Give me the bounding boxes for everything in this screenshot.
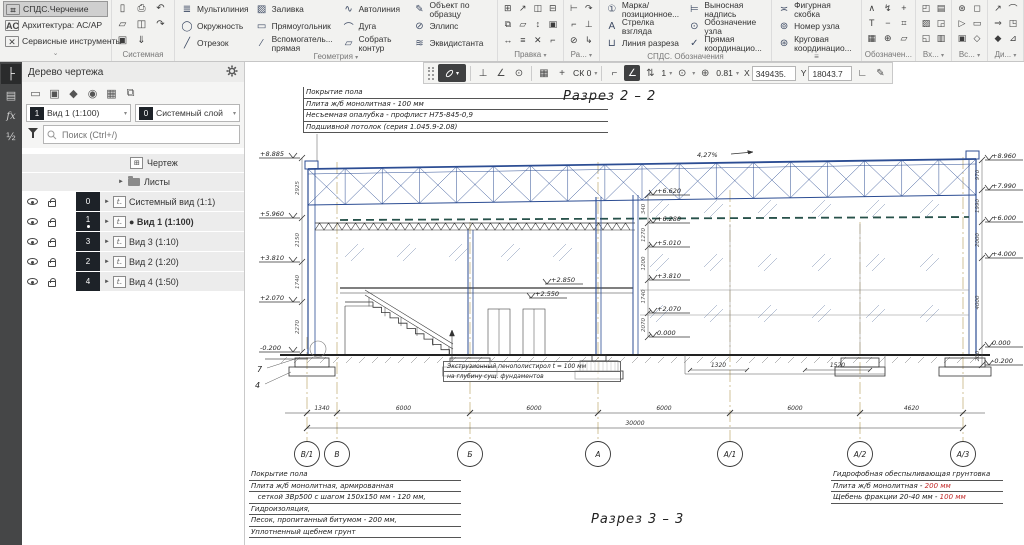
- svg-text:0.000: 0.000: [992, 339, 1011, 347]
- workspace-expand-chevron[interactable]: ⌄: [3, 49, 108, 59]
- chevron-down-icon[interactable]: ▾: [589, 53, 592, 59]
- curly-bracket-icon: ≍: [777, 4, 791, 15]
- tool-label: Прямоугольник: [272, 22, 331, 31]
- properties-rail-icon[interactable]: ▤: [1, 85, 21, 105]
- spec-line: Подшивной потолок (серия 1.045.9-2.08): [304, 122, 608, 134]
- foundation-spec-callout: Гидрофобная обеспыливающая грунтовкаПлит…: [831, 469, 1003, 504]
- segment-tool[interactable]: ╱Отрезок: [178, 35, 253, 52]
- dimension-icons: ⊢⌐⊘↷⊥↳: [567, 1, 596, 49]
- workspace-spds-drafting[interactable]: ⌗ СПДС.Черчение: [3, 1, 108, 17]
- direct-coordination-icon: ✓: [687, 38, 701, 49]
- collect-contour-icon: ▱: [342, 38, 356, 49]
- svg-text:+5.010: +5.010: [657, 239, 681, 247]
- svg-text:1320: 1320: [711, 362, 726, 369]
- ribbon-icon[interactable]: ◱: [919, 31, 933, 45]
- lock-icon[interactable]: [48, 261, 56, 267]
- layer-number-badge: 0: [139, 107, 153, 120]
- chevron-down-icon[interactable]: ▾: [355, 55, 358, 61]
- section-3-3-title: Разрез 3 – 3: [591, 512, 684, 527]
- node-icon[interactable]: ◉: [85, 86, 100, 101]
- x-label: X: [744, 68, 750, 78]
- svg-text:В: В: [334, 450, 339, 459]
- tool-label: Заливка: [272, 5, 304, 14]
- arc-icon: ⌒: [342, 19, 356, 34]
- quick-toolbar: ▾ ⊥ ∠ ⊙ ▦ + СК 0 ▾ ⌐ ∠ ⇅ 1 ▾ ⊙ ▾ ⊕ 0.81: [423, 62, 893, 84]
- expand-arrow-icon[interactable]: ►: [104, 239, 110, 245]
- zoom-window-icon[interactable]: ⊙: [674, 65, 690, 81]
- tool-label: Автолиния: [359, 5, 400, 14]
- view-arrow-icon: A: [605, 21, 619, 32]
- collect-contour-tool[interactable]: ▱Собрать контур: [340, 35, 411, 52]
- ribbon-icon[interactable]: ⊿: [1006, 31, 1020, 45]
- expand-arrow-icon[interactable]: ►: [104, 199, 110, 205]
- y-coordinate-field[interactable]: 18043.7: [808, 66, 852, 81]
- svg-text:+5.960: +5.960: [260, 210, 284, 218]
- rectangle-icon: ▭: [255, 21, 269, 32]
- circular-coordination-icon: ⊛: [777, 38, 791, 49]
- svg-text:+2.550: +2.550: [535, 290, 559, 298]
- ribbon-icon[interactable]: ≡: [516, 33, 530, 47]
- ribbon-icon[interactable]: ↗: [516, 1, 530, 15]
- current-layer-combo[interactable]: 0 Системный слой ▾: [135, 104, 240, 122]
- ribbon-icon[interactable]: ⊛: [955, 1, 969, 15]
- current-view-combo[interactable]: 1 Вид 1 (1:100) ▾: [26, 104, 131, 122]
- save-as-icon[interactable]: ⇓: [134, 33, 149, 48]
- ellipse-icon: ⊘: [412, 21, 426, 32]
- svg-text:7: 7: [257, 365, 263, 374]
- view-type-icon: t.: [113, 236, 126, 248]
- ribbon-icon[interactable]: ▱: [516, 17, 530, 31]
- workspace-label: СПДС.Черчение: [23, 4, 88, 14]
- print-preview-icon[interactable]: ◫: [134, 17, 149, 32]
- open-document-icon[interactable]: ▱: [115, 17, 130, 32]
- ribbon-icon[interactable]: ↕: [531, 17, 545, 31]
- ribbon-icon[interactable]: ⧉: [501, 17, 515, 31]
- gear-icon[interactable]: [226, 65, 238, 80]
- object-by-sample-tool[interactable]: ✎Объект по образцу: [410, 1, 493, 18]
- snap-point-icon[interactable]: ⊙: [511, 65, 527, 81]
- drawing-canvas[interactable]: 744,27%В/1ВБАА/1А/2А/3134060006000600060…: [245, 62, 1024, 545]
- lock-icon[interactable]: [48, 241, 56, 247]
- tool-label: Номер узла: [794, 22, 840, 31]
- svg-text:+7.990: +7.990: [992, 182, 1016, 190]
- sheet-icon[interactable]: ▣: [47, 86, 62, 101]
- tool-label: Окружность: [197, 22, 243, 31]
- chevron-down-icon[interactable]: ▾: [977, 53, 980, 59]
- view-row[interactable]: 1►t.● Вид 1 (1:100): [22, 212, 244, 231]
- toolbar-grip[interactable]: [428, 67, 434, 80]
- svg-text:4620: 4620: [904, 405, 919, 412]
- spds-extra-tools: ≍Фигурная скобка⊚Номер узла⊛Круговая коо…: [775, 1, 858, 52]
- svg-text:970: 970: [975, 169, 981, 180]
- spec-line: на глубину сущ. фундаментов: [444, 372, 620, 381]
- ribbon-group-spds-symbols: ①Марка/ позиционное...AСтрелка взгляда⊔Л…: [600, 0, 772, 61]
- tree-item-sheets[interactable]: ► Листы: [22, 173, 244, 191]
- expand-arrow-icon[interactable]: ►: [104, 219, 110, 225]
- svg-text:+2.070: +2.070: [260, 294, 284, 302]
- edit-icons: ⊞⧉↔↗▱≡◫↕✕⊟▣⌐: [501, 1, 560, 49]
- position-mark-icon: ①: [605, 4, 619, 15]
- view-number-badge[interactable]: 4: [76, 272, 100, 291]
- eye-icon[interactable]: [27, 218, 38, 225]
- group-label: СПДС. Обозначения: [603, 52, 768, 62]
- view-row[interactable]: 2►t.Вид 2 (1:20): [22, 252, 244, 271]
- autoline-icon: ∿: [342, 4, 356, 15]
- construction-line-icon: ∕: [255, 38, 269, 49]
- view-type-icon: t.: [113, 276, 126, 288]
- ribbon-icon[interactable]: ⌐: [567, 17, 581, 31]
- ribbon-icon[interactable]: ⊟: [546, 1, 560, 15]
- parameters-rail-icon[interactable]: ½: [1, 127, 21, 147]
- group-grip: ≡: [775, 52, 858, 62]
- spec-line: сеткой 3Вр500 с шагом 150х150 мм - 120 м…: [249, 492, 461, 504]
- layer-icon[interactable]: ◆: [66, 86, 81, 101]
- filter-funnel-icon[interactable]: [28, 128, 39, 141]
- ribbon-icon[interactable]: ◇: [970, 31, 984, 45]
- chevron-down-icon[interactable]: ▾: [692, 70, 695, 77]
- tool-label: Эллипс: [429, 22, 458, 31]
- workspace-switcher: ⌗ СПДС.Черчение AC Архитектура: АС/АР ✕ …: [0, 0, 112, 61]
- dynamic-icons: ↗⇒◆⌒◳⊿: [991, 1, 1020, 46]
- current-view-value: Вид 1 (1:100): [47, 108, 121, 118]
- circular-coordination-tool[interactable]: ⊛Круговая координацио...: [775, 35, 858, 52]
- view-number-badge[interactable]: 2: [76, 252, 100, 271]
- curly-bracket-tool[interactable]: ≍Фигурная скобка: [775, 1, 858, 18]
- tool-label: Вспомогатель... прямая: [272, 35, 336, 52]
- ellipse-tool[interactable]: ⊘Эллипс: [410, 18, 493, 35]
- new-document-icon[interactable]: ▯: [115, 1, 130, 16]
- svg-text:6000: 6000: [787, 405, 802, 412]
- svg-text:2270: 2270: [295, 320, 301, 334]
- ribbon-icon[interactable]: ∧: [865, 1, 879, 15]
- lock-icon[interactable]: [48, 281, 56, 287]
- x-coordinate-field[interactable]: 349435.: [752, 66, 796, 81]
- ribbon-icon[interactable]: ▤: [934, 1, 948, 15]
- ribbon-group-dimensions: ⊢⌐⊘↷⊥↳ Ра... ▾: [564, 0, 600, 61]
- chevron-down-icon[interactable]: ▾: [543, 53, 546, 59]
- ribbon-icon[interactable]: −: [881, 16, 895, 30]
- view-number-badge: 1: [30, 107, 44, 120]
- ribbon-icon[interactable]: ◰: [919, 1, 933, 15]
- main-area: ├ ▤ fx ½ Дерево чертежа ▭ ▣ ◆ ◉ ▦ ⧉: [0, 62, 1024, 545]
- equidistant-icon: ≋: [412, 38, 426, 49]
- folder-icon: [128, 178, 140, 186]
- ribbon-icon[interactable]: ⊘: [567, 33, 581, 47]
- view-row[interactable]: 4►t.Вид 4 (1:50): [22, 272, 244, 291]
- svg-text:1200: 1200: [641, 256, 647, 270]
- spec-line: Песок, пропитанный битумом - 200 мм,: [249, 515, 461, 527]
- ribbon-icon[interactable]: ⌗: [897, 16, 911, 30]
- circle-tool[interactable]: ◯Окружность: [178, 18, 253, 35]
- tool-label: Марка/ позиционное...: [622, 1, 682, 18]
- search-icon: [47, 130, 57, 140]
- workspace-architecture[interactable]: AC Архитектура: АС/АР: [3, 17, 108, 33]
- ribbon-icon[interactable]: ▣: [546, 17, 560, 31]
- group-label: Системная: [115, 50, 171, 61]
- tool-label: Круговая координацио...: [794, 35, 854, 52]
- redo-icon[interactable]: ↷: [153, 17, 168, 32]
- expand-arrow-icon[interactable]: ►: [104, 279, 110, 285]
- tool-label: Прямая координацио...: [704, 35, 764, 52]
- svg-text:В/1: В/1: [301, 450, 313, 459]
- chevron-down-icon: ▾: [124, 110, 127, 117]
- view-type-icon: t.: [113, 196, 126, 208]
- ribbon-icon[interactable]: ◲: [934, 16, 948, 30]
- autoline-tool[interactable]: ∿Автолиния: [340, 1, 411, 18]
- ortho-mode-icon[interactable]: ⌐: [606, 65, 622, 81]
- svg-text:0.000: 0.000: [657, 329, 676, 337]
- print-icon[interactable]: ⎙: [134, 1, 149, 16]
- spec-line: Несъемная опалубка - профлист Н75-845-0,…: [304, 110, 608, 122]
- drawing-tree-rail-icon[interactable]: ├: [1, 64, 21, 84]
- ribbon-group-spds-extra: ≍Фигурная скобка⊚Номер узла⊛Круговая коо…: [772, 0, 862, 61]
- multiline-icon: ≣: [180, 4, 194, 15]
- eye-icon[interactable]: [27, 278, 38, 285]
- ribbon-group-dynamic: ↗⇒◆⌒◳⊿ Ди... ▾: [988, 0, 1024, 61]
- tool-label: Отрезок: [197, 39, 229, 48]
- svg-text:30000: 30000: [625, 420, 644, 427]
- ribbon: ⌗ СПДС.Черчение AC Архитектура: АС/АР ✕ …: [0, 0, 1024, 62]
- eyedropper-icon[interactable]: ✎: [872, 65, 888, 81]
- ribbon-group-auxiliary: ⊛▷▣◻▭◇ Вс... ▾: [952, 0, 988, 61]
- ribbon-icon[interactable]: ◆: [991, 31, 1005, 45]
- ribbon-icon[interactable]: ▷: [955, 16, 969, 30]
- floor-spec-callout: Покрытие полаПлита ж/б монолитная, армир…: [249, 469, 461, 538]
- svg-text:2070: 2070: [641, 318, 647, 332]
- position-mark-tool[interactable]: ①Марка/ позиционное...: [603, 1, 686, 18]
- tool-label: Стрелка взгляда: [622, 18, 682, 35]
- search-input[interactable]: [43, 125, 240, 144]
- svg-text:-0.200: -0.200: [260, 344, 281, 352]
- view-label: Системный вид (1:1): [129, 197, 215, 207]
- svg-text:+6.280: +6.280: [657, 215, 681, 223]
- tool-label: Объект по образцу: [429, 1, 489, 18]
- ribbon-icon[interactable]: ▱: [897, 31, 911, 45]
- tree-item-drawing[interactable]: ⊞ Чертеж: [22, 154, 244, 172]
- svg-text:200: 200: [975, 350, 981, 361]
- service-tools-icon: ✕: [5, 36, 19, 47]
- ribbon-icon[interactable]: ↷: [582, 1, 596, 15]
- ribbon-icon[interactable]: ▥: [934, 31, 948, 45]
- svg-text:6000: 6000: [656, 405, 671, 412]
- zoom-scale-icon[interactable]: ⊕: [697, 65, 713, 81]
- eye-icon[interactable]: [27, 238, 38, 245]
- ruler-icon[interactable]: ∟: [854, 65, 870, 81]
- svg-text:А: А: [594, 450, 600, 459]
- current-layer-value: Системный слой: [156, 108, 230, 118]
- group-label: Геометрия ▾: [178, 52, 494, 62]
- svg-text:1270: 1270: [641, 228, 647, 242]
- tool-label: Обозначение узла: [704, 18, 764, 35]
- ribbon-icon[interactable]: ↳: [582, 33, 596, 47]
- workspace-service-tools[interactable]: ✕ Сервисные инструменты: [3, 33, 108, 49]
- node-designation-icon: ⊙: [687, 21, 701, 32]
- ribbon-group-designations: ∧T▦↯−⊕+⌗▱ Обозначен...: [862, 0, 916, 61]
- node-designation-tool[interactable]: ⊙Обозначение узла: [685, 18, 768, 35]
- ribbon-icon[interactable]: T: [865, 16, 879, 30]
- panel-toolbar: ▭ ▣ ◆ ◉ ▦ ⧉: [22, 82, 244, 104]
- ribbon-icon[interactable]: ⌐: [546, 33, 560, 47]
- ribbon-icon[interactable]: ⌒: [1006, 1, 1020, 15]
- leader-note-icon: ⊨: [687, 4, 701, 15]
- svg-text:1740: 1740: [295, 275, 301, 289]
- ribbon-icon[interactable]: ↔: [501, 33, 515, 47]
- ribbon-icon[interactable]: ▨: [919, 16, 933, 30]
- layer-step-icon: ⇅: [642, 65, 658, 81]
- object-snap-button[interactable]: ▾: [438, 64, 466, 82]
- tool-label: Эквидистанта: [429, 39, 483, 48]
- ribbon-icon[interactable]: ↯: [881, 1, 895, 15]
- section-line-icon: ⊔: [605, 38, 619, 49]
- auxiliary-icons: ⊛▷▣◻▭◇: [955, 1, 984, 46]
- image-icon[interactable]: ▦: [104, 86, 119, 101]
- fill-tool[interactable]: ▨Заливка: [253, 1, 340, 18]
- svg-text:4000: 4000: [975, 295, 981, 309]
- svg-text:2000: 2000: [975, 233, 981, 247]
- drawing-tree-panel: Дерево чертежа ▭ ▣ ◆ ◉ ▦ ⧉ 1 Вид 1 (1:10…: [22, 62, 245, 545]
- eye-icon[interactable]: [27, 258, 38, 265]
- ribbon-icon[interactable]: ↗: [991, 1, 1005, 15]
- spec-line: Гидроизоляция,: [249, 504, 461, 516]
- fill-icon: ▨: [255, 4, 269, 15]
- view-type-icon: t.: [113, 256, 126, 268]
- application-window: ⌗ СПДС.Черчение AC Архитектура: АС/АР ✕ …: [0, 0, 1024, 545]
- spec-line: Гидрофобная обеспыливающая грунтовка: [831, 469, 1003, 481]
- tool-label: Дуга: [359, 22, 377, 31]
- zoom-value[interactable]: 0.81: [715, 68, 734, 78]
- tool-label: Фигурная скобка: [794, 1, 854, 18]
- spds-tools: ①Марка/ позиционное...AСтрелка взгляда⊔Л…: [603, 1, 768, 52]
- ribbon-icon[interactable]: ⊞: [501, 1, 515, 15]
- construction-line-tool[interactable]: ∕Вспомогатель... прямая: [253, 35, 340, 52]
- spec-line: Уплотненный щебнем грунт: [249, 527, 461, 539]
- svg-text:А/2: А/2: [853, 450, 867, 459]
- designation-icons: ∧T▦↯−⊕+⌗▱: [865, 1, 912, 46]
- spec-line: Плита ж/б монолитная, армированная: [249, 481, 461, 493]
- chevron-down-icon: ▾: [233, 110, 236, 117]
- grid-icon[interactable]: ▦: [536, 65, 552, 81]
- ribbon-icon[interactable]: ◻: [970, 1, 984, 15]
- svg-text:+2.070: +2.070: [657, 305, 681, 313]
- svg-text:+6.000: +6.000: [992, 214, 1016, 222]
- equidistant-tool[interactable]: ≋Эквидистанта: [410, 35, 493, 52]
- svg-text:1990: 1990: [975, 199, 981, 213]
- lock-icon[interactable]: [48, 221, 56, 227]
- svg-text:+3.810: +3.810: [657, 272, 681, 280]
- ribbon-group-geometry: ≣Мультилиния◯Окружность╱Отрезок▨Заливка▭…: [175, 0, 498, 61]
- view-type-icon: t.: [113, 216, 126, 228]
- ribbon-icon[interactable]: ◫: [531, 1, 545, 15]
- chevron-down-icon[interactable]: ▾: [736, 70, 739, 77]
- ribbon-icon[interactable]: ▣: [955, 31, 969, 45]
- ribbon-icon[interactable]: ▦: [865, 31, 879, 45]
- lock-icon[interactable]: [48, 201, 56, 207]
- segment-icon: ╱: [180, 38, 194, 49]
- multiline-tool[interactable]: ≣Мультилиния: [178, 1, 253, 18]
- polar-tracking-icon[interactable]: ∠: [624, 65, 640, 81]
- ribbon-icon[interactable]: ◳: [1006, 16, 1020, 30]
- snap-angle-icon[interactable]: ∠: [493, 65, 509, 81]
- coordinate-system-value[interactable]: СК 0: [572, 68, 592, 78]
- tool-label: Выносная надпись: [704, 1, 764, 18]
- view-number-badge[interactable]: 1: [76, 212, 100, 231]
- view-label: ● Вид 1 (1:100): [129, 217, 194, 227]
- ribbon-icon[interactable]: ⊕: [881, 31, 895, 45]
- view-icon[interactable]: ▭: [28, 86, 43, 101]
- expand-arrow-icon[interactable]: ►: [118, 179, 124, 185]
- svg-text:+8.885: +8.885: [260, 150, 284, 158]
- svg-text:6000: 6000: [396, 405, 411, 412]
- chevron-down-icon[interactable]: ▾: [1013, 53, 1016, 59]
- view-row[interactable]: 3►t.Вид 3 (1:10): [22, 232, 244, 251]
- eye-icon[interactable]: [27, 198, 38, 205]
- drawing-icon: ⊞: [130, 157, 143, 169]
- svg-text:6000: 6000: [526, 405, 541, 412]
- expand-arrow-icon[interactable]: ►: [104, 259, 110, 265]
- variables-rail-icon[interactable]: fx: [1, 106, 21, 126]
- step-value[interactable]: 1: [660, 68, 667, 78]
- rectangle-tool[interactable]: ▭Прямоугольник: [253, 18, 340, 35]
- spec-line: Экструзионный пенополистирол t = 100 мм: [444, 362, 620, 372]
- workspace-label: Архитектура: АС/АР: [22, 20, 102, 30]
- group-label: Правка ▾: [501, 50, 560, 61]
- svg-text:+8.960: +8.960: [992, 152, 1016, 160]
- spds-workspace-icon: ⌗: [6, 4, 20, 15]
- system-icons: ▯▱▣⎙◫⇓↶↷: [115, 1, 171, 49]
- chevron-down-icon[interactable]: ▾: [669, 70, 672, 77]
- spec-line: Плита ж/б монолитная - 200 мм: [831, 481, 1003, 493]
- tree-item-label: Листы: [144, 177, 170, 187]
- node-number-tool[interactable]: ⊚Номер узла: [775, 18, 858, 35]
- view-number-badge[interactable]: 3: [76, 232, 100, 251]
- ribbon-group-entrances: ◰▨◱▤◲▥ Вх... ▾: [916, 0, 952, 61]
- section-line-tool[interactable]: ⊔Линия разреза: [603, 35, 686, 52]
- snap-perpendicular-icon[interactable]: ⊥: [475, 65, 491, 81]
- svg-text:+6.620: +6.620: [657, 187, 681, 195]
- ribbon-icon[interactable]: ✕: [531, 33, 545, 47]
- direct-coordination-tool[interactable]: ✓Прямая координацио...: [685, 35, 768, 52]
- arc-tool[interactable]: ⌒Дуга: [340, 18, 411, 35]
- tool-label: Мультилиния: [197, 5, 249, 14]
- svg-text:1740: 1740: [641, 289, 647, 303]
- view-number-badge[interactable]: 0: [76, 192, 100, 211]
- view-row[interactable]: 0►t.Системный вид (1:1): [22, 192, 244, 211]
- ribbon-icon[interactable]: +: [897, 1, 911, 15]
- svg-text:340: 340: [641, 203, 647, 214]
- svg-text:4: 4: [255, 381, 260, 390]
- fragment-icon[interactable]: ⧉: [123, 86, 138, 101]
- ribbon-icon[interactable]: ⊥: [582, 17, 596, 31]
- save-icon[interactable]: ▣: [115, 33, 130, 48]
- svg-text:2925: 2925: [295, 181, 301, 195]
- view-label: Вид 3 (1:10): [129, 237, 179, 247]
- ribbon-icon[interactable]: ⊢: [567, 1, 581, 15]
- architecture-workspace-icon: AC: [5, 20, 19, 31]
- tool-label: Линия разреза: [622, 39, 679, 48]
- chevron-down-icon[interactable]: ▾: [941, 53, 944, 59]
- undo-icon[interactable]: ↶: [153, 1, 168, 16]
- snap-clip-icon: [445, 68, 455, 78]
- leader-note-tool[interactable]: ⊨Выносная надпись: [685, 1, 768, 18]
- view-arrow-tool[interactable]: AСтрелка взгляда: [603, 18, 686, 35]
- group-label: Ди... ▾: [991, 50, 1020, 61]
- ribbon-icon[interactable]: ▭: [970, 16, 984, 30]
- drawing-tree-list: ⊞ Чертеж ► Листы 0►t.Системный вид (1:1)…: [22, 148, 244, 545]
- chevron-down-icon[interactable]: ▾: [594, 70, 597, 77]
- svg-text:+3.810: +3.810: [260, 254, 284, 262]
- ribbon-icon[interactable]: ⇒: [991, 16, 1005, 30]
- panel-title: Дерево чертежа: [28, 67, 103, 78]
